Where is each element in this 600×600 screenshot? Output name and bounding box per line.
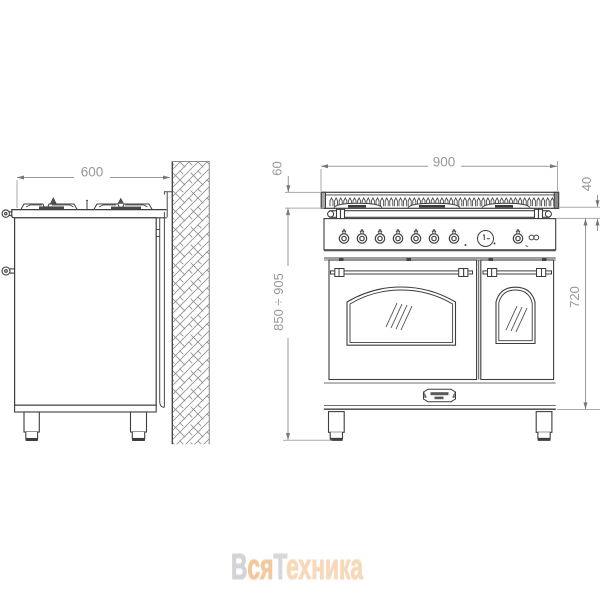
svg-text:720: 720 (567, 286, 582, 308)
svg-text:60: 60 (270, 161, 285, 175)
svg-text:600: 600 (81, 165, 104, 180)
svg-text:850 ÷ 905: 850 ÷ 905 (271, 273, 286, 331)
svg-text:900: 900 (433, 155, 456, 170)
svg-text:40: 40 (579, 177, 594, 191)
